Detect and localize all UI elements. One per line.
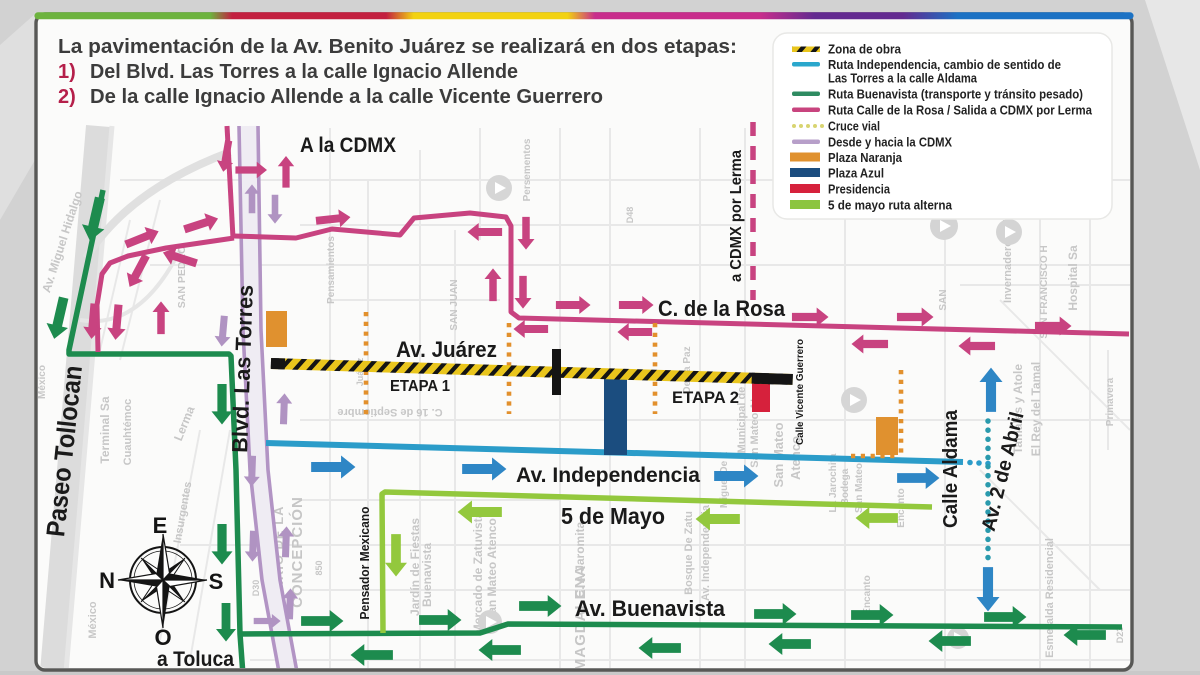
svg-text:D48: D48 <box>625 207 635 224</box>
svg-text:Plaza Azul: Plaza Azul <box>828 167 884 181</box>
svg-text:Terminal Sa: Terminal Sa <box>98 396 112 463</box>
svg-text:ETAPA 1: ETAPA 1 <box>390 378 450 395</box>
svg-text:Presidencia: Presidencia <box>828 183 891 197</box>
svg-text:SAN JUAN: SAN JUAN <box>449 279 460 330</box>
svg-text:Buenavista: Buenavista <box>420 543 434 607</box>
svg-text:Calle Vicente Guerrero: Calle Vicente Guerrero <box>794 339 806 445</box>
svg-text:SAN: SAN <box>938 289 949 310</box>
svg-text:Persementos: Persementos <box>522 138 533 201</box>
svg-text:Av. Buenavista: Av. Buenavista <box>575 596 726 621</box>
svg-text:México: México <box>37 365 48 399</box>
svg-text:C. A Jaromita: C. A Jaromita <box>573 521 587 598</box>
svg-text:E: E <box>153 513 168 538</box>
svg-text:N: N <box>99 568 115 593</box>
svg-text:México: México <box>87 601 99 639</box>
svg-text:Ruta Independencia, cambio de: Ruta Independencia, cambio de sentido de <box>828 58 1061 72</box>
svg-text:Calle Aldama: Calle Aldama <box>940 409 962 528</box>
svg-text:Las Torres a la calle Aldama: Las Torres a la calle Aldama <box>828 72 978 86</box>
svg-text:Bodega: Bodega <box>840 468 851 505</box>
svg-text:Av. Independencia: Av. Independencia <box>516 464 700 487</box>
svg-text:Ruta Calle de la Rosa / Salida: Ruta Calle de la Rosa / Salida a CDMX po… <box>828 104 1093 118</box>
svg-text:La pavimentación de la Av. Ben: La pavimentación de la Av. Benito Juárez… <box>58 36 737 58</box>
svg-text:Encanto: Encanto <box>862 575 873 614</box>
svg-text:Pensamientos: Pensamientos <box>326 236 337 304</box>
svg-text:Hospital Sa: Hospital Sa <box>1066 245 1080 311</box>
svg-text:Bosque De Zatu: Bosque De Zatu <box>683 511 695 595</box>
svg-text:D30: D30 <box>251 580 261 597</box>
svg-text:Plaza Naranja: Plaza Naranja <box>828 151 903 165</box>
svg-text:De La Paz: De La Paz <box>682 346 693 393</box>
svg-text:Av. Juárez: Av. Juárez <box>396 337 497 362</box>
svg-text:1): 1) <box>58 61 76 83</box>
svg-text:Ruta Buenavista (transporte y: Ruta Buenavista (transporte y tránsito p… <box>828 88 1083 102</box>
svg-text:a Toluca: a Toluca <box>157 648 234 671</box>
svg-text:A la CDMX: A la CDMX <box>300 134 396 157</box>
svg-text:5 de mayo ruta alterna: 5 de mayo ruta alterna <box>828 199 953 213</box>
svg-text:ETAPA 2: ETAPA 2 <box>672 389 739 407</box>
svg-text:Desde y hacia la CDMX: Desde y hacia la CDMX <box>828 136 953 150</box>
svg-text:5 de Mayo: 5 de Mayo <box>561 503 665 529</box>
svg-text:El Rey del Tamal: El Rey del Tamal <box>1029 362 1043 456</box>
svg-text:Cuauhtémoc: Cuauhtémoc <box>122 399 134 466</box>
svg-text:San Mateo Atenco: San Mateo Atenco <box>485 518 499 622</box>
svg-text:De la calle Ignacio Allende a: De la calle Ignacio Allende a la calle V… <box>90 86 603 108</box>
svg-text:C. 16 de Septiembre: C. 16 de Septiembre <box>337 406 442 418</box>
svg-text:Esmeralda Residencial: Esmeralda Residencial <box>1044 538 1056 658</box>
svg-text:Zona de obra: Zona de obra <box>828 43 902 57</box>
svg-text:Del Blvd. Las Torres a la call: Del Blvd. Las Torres a la calle Ignacio … <box>90 61 518 83</box>
svg-text:Cruce vial: Cruce vial <box>828 120 880 134</box>
svg-text:S: S <box>209 569 224 594</box>
svg-text:O: O <box>154 625 171 650</box>
svg-text:Primavera: Primavera <box>1105 377 1116 426</box>
svg-text:Pensador Mexicano: Pensador Mexicano <box>358 506 372 619</box>
svg-text:850: 850 <box>314 560 324 575</box>
svg-text:a CDMX por Lerma: a CDMX por Lerma <box>728 150 745 282</box>
svg-text:2): 2) <box>58 86 76 108</box>
svg-text:C. de la Rosa: C. de la Rosa <box>658 296 786 321</box>
